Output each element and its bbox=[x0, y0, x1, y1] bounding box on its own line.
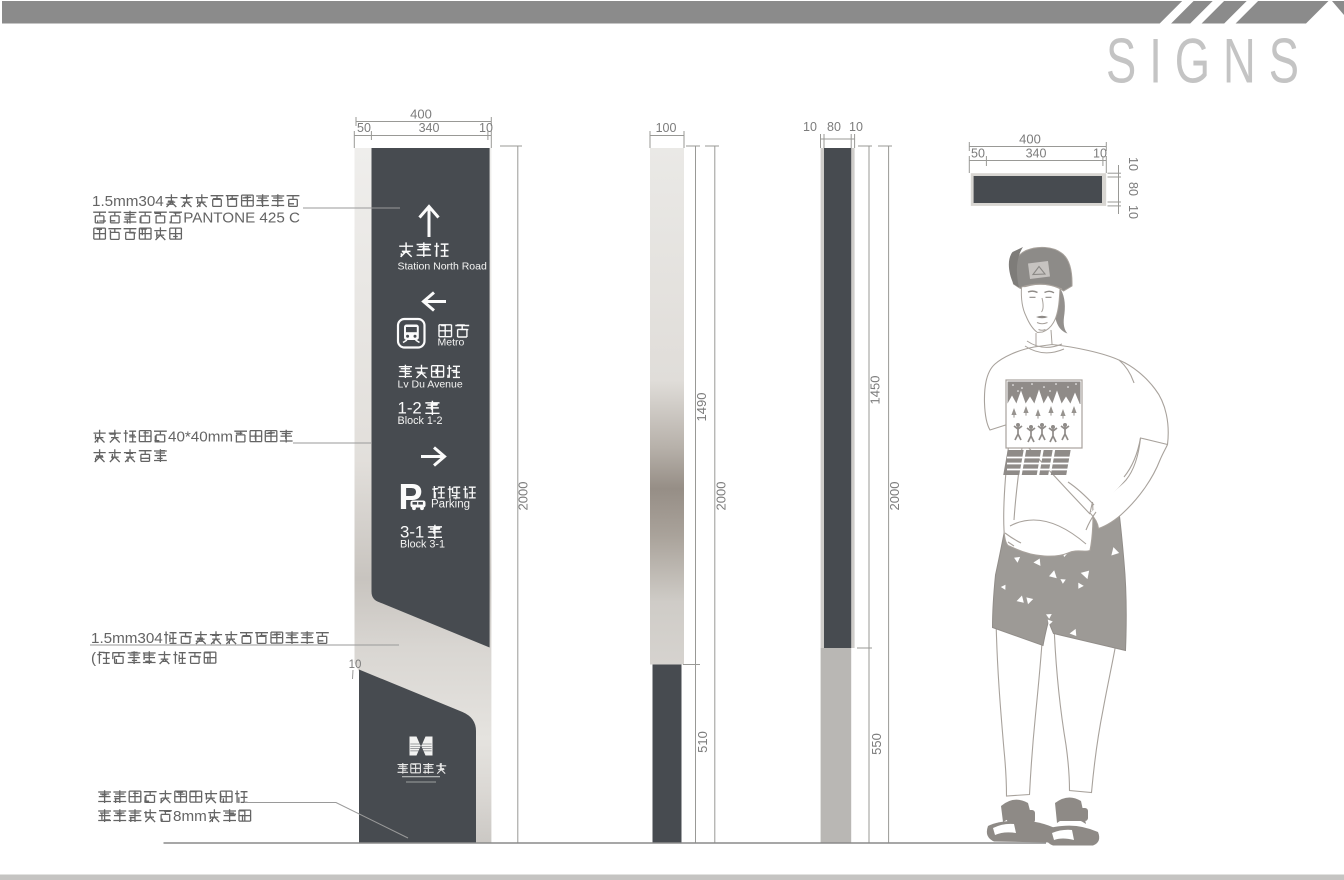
svg-text:80: 80 bbox=[827, 120, 841, 134]
svg-text:400: 400 bbox=[410, 107, 432, 122]
svg-text:50: 50 bbox=[971, 147, 985, 161]
svg-text:Metro: Metro bbox=[438, 337, 465, 349]
svg-text:100: 100 bbox=[656, 121, 677, 135]
svg-text:Lv Du Avenue: Lv Du Avenue bbox=[398, 379, 463, 391]
svg-text:(: ( bbox=[91, 650, 96, 667]
svg-text:Parking: Parking bbox=[431, 499, 470, 511]
svg-text:10: 10 bbox=[1126, 157, 1140, 171]
svg-text:1490: 1490 bbox=[694, 393, 709, 422]
svg-text:10: 10 bbox=[349, 659, 362, 671]
svg-text:PANTONE 425 C: PANTONE 425 C bbox=[183, 209, 300, 226]
svg-text:510: 510 bbox=[695, 731, 710, 753]
svg-text:50: 50 bbox=[357, 121, 371, 135]
svg-text:2000: 2000 bbox=[887, 482, 902, 511]
svg-text:10: 10 bbox=[803, 120, 817, 134]
svg-text:Block 1-2: Block 1-2 bbox=[398, 415, 443, 427]
svg-text:SIGNS: SIGNS bbox=[1106, 25, 1312, 96]
svg-text:1450: 1450 bbox=[868, 376, 883, 405]
svg-text:400: 400 bbox=[1019, 132, 1041, 147]
svg-text:340: 340 bbox=[1026, 147, 1047, 161]
svg-text:Block 3-1: Block 3-1 bbox=[400, 539, 445, 551]
svg-text:1.5mm304: 1.5mm304 bbox=[92, 193, 164, 210]
svg-text:10: 10 bbox=[1093, 147, 1107, 161]
svg-text:Station North Road: Station North Road bbox=[398, 261, 487, 273]
svg-text:P: P bbox=[399, 476, 423, 517]
svg-text:1.5mm304: 1.5mm304 bbox=[91, 630, 163, 647]
svg-text:2000: 2000 bbox=[714, 482, 729, 511]
svg-text:8mm: 8mm bbox=[173, 808, 207, 825]
svg-text:10: 10 bbox=[1126, 205, 1140, 219]
svg-text:80: 80 bbox=[1126, 182, 1140, 196]
svg-text:10: 10 bbox=[849, 120, 863, 134]
svg-text:2000: 2000 bbox=[516, 482, 531, 511]
svg-text:550: 550 bbox=[869, 733, 884, 755]
svg-text:340: 340 bbox=[419, 121, 440, 135]
svg-text:40*40mm: 40*40mm bbox=[168, 428, 233, 445]
